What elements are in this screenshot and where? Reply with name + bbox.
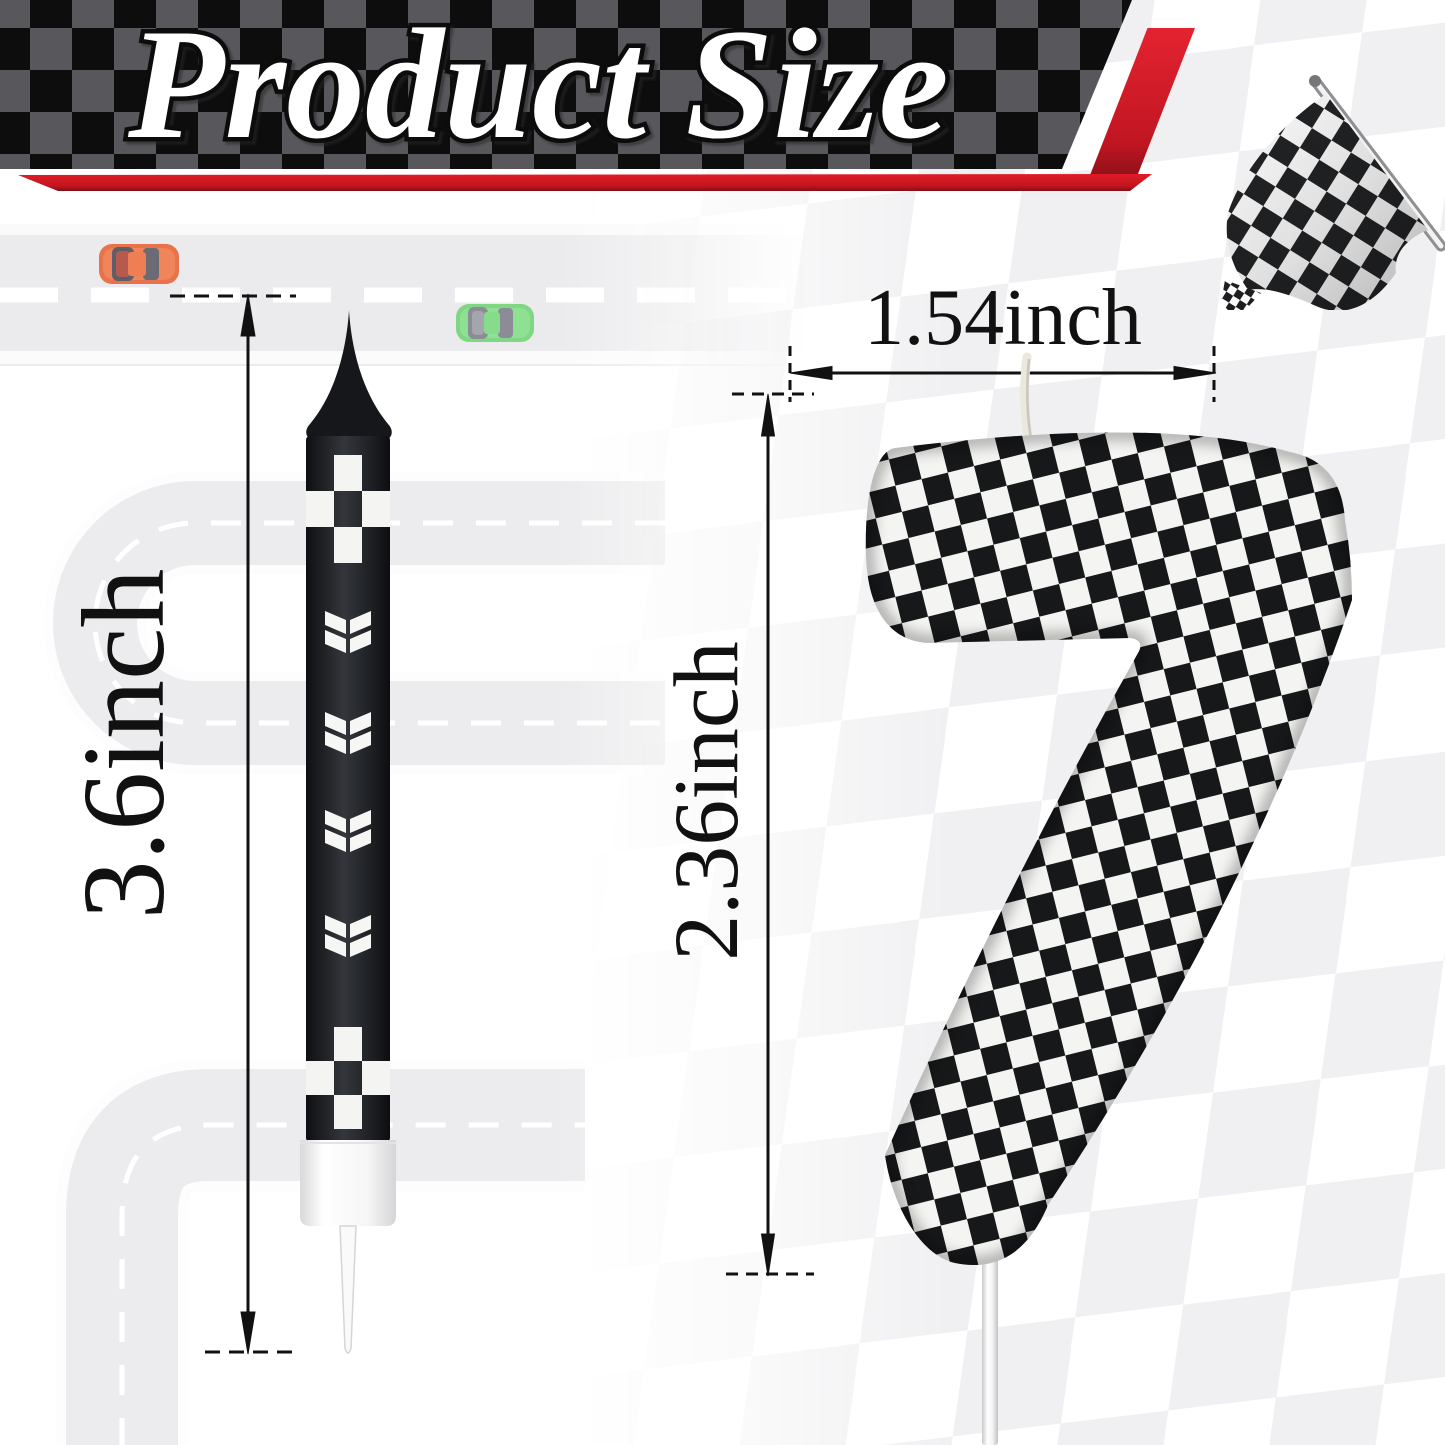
number-7-shape xyxy=(866,432,1352,1265)
candle-tip xyxy=(306,310,392,439)
number-7-candle xyxy=(830,335,1400,1265)
product-size-infographic: Product Size xyxy=(0,0,1445,1445)
candle-height-label: 3.6inch xyxy=(62,544,186,944)
candle-holder xyxy=(300,1140,396,1226)
striped-taper-candle xyxy=(288,298,418,1373)
candle-spike xyxy=(340,1226,356,1353)
number-height-label: 2.36inch xyxy=(658,621,754,981)
